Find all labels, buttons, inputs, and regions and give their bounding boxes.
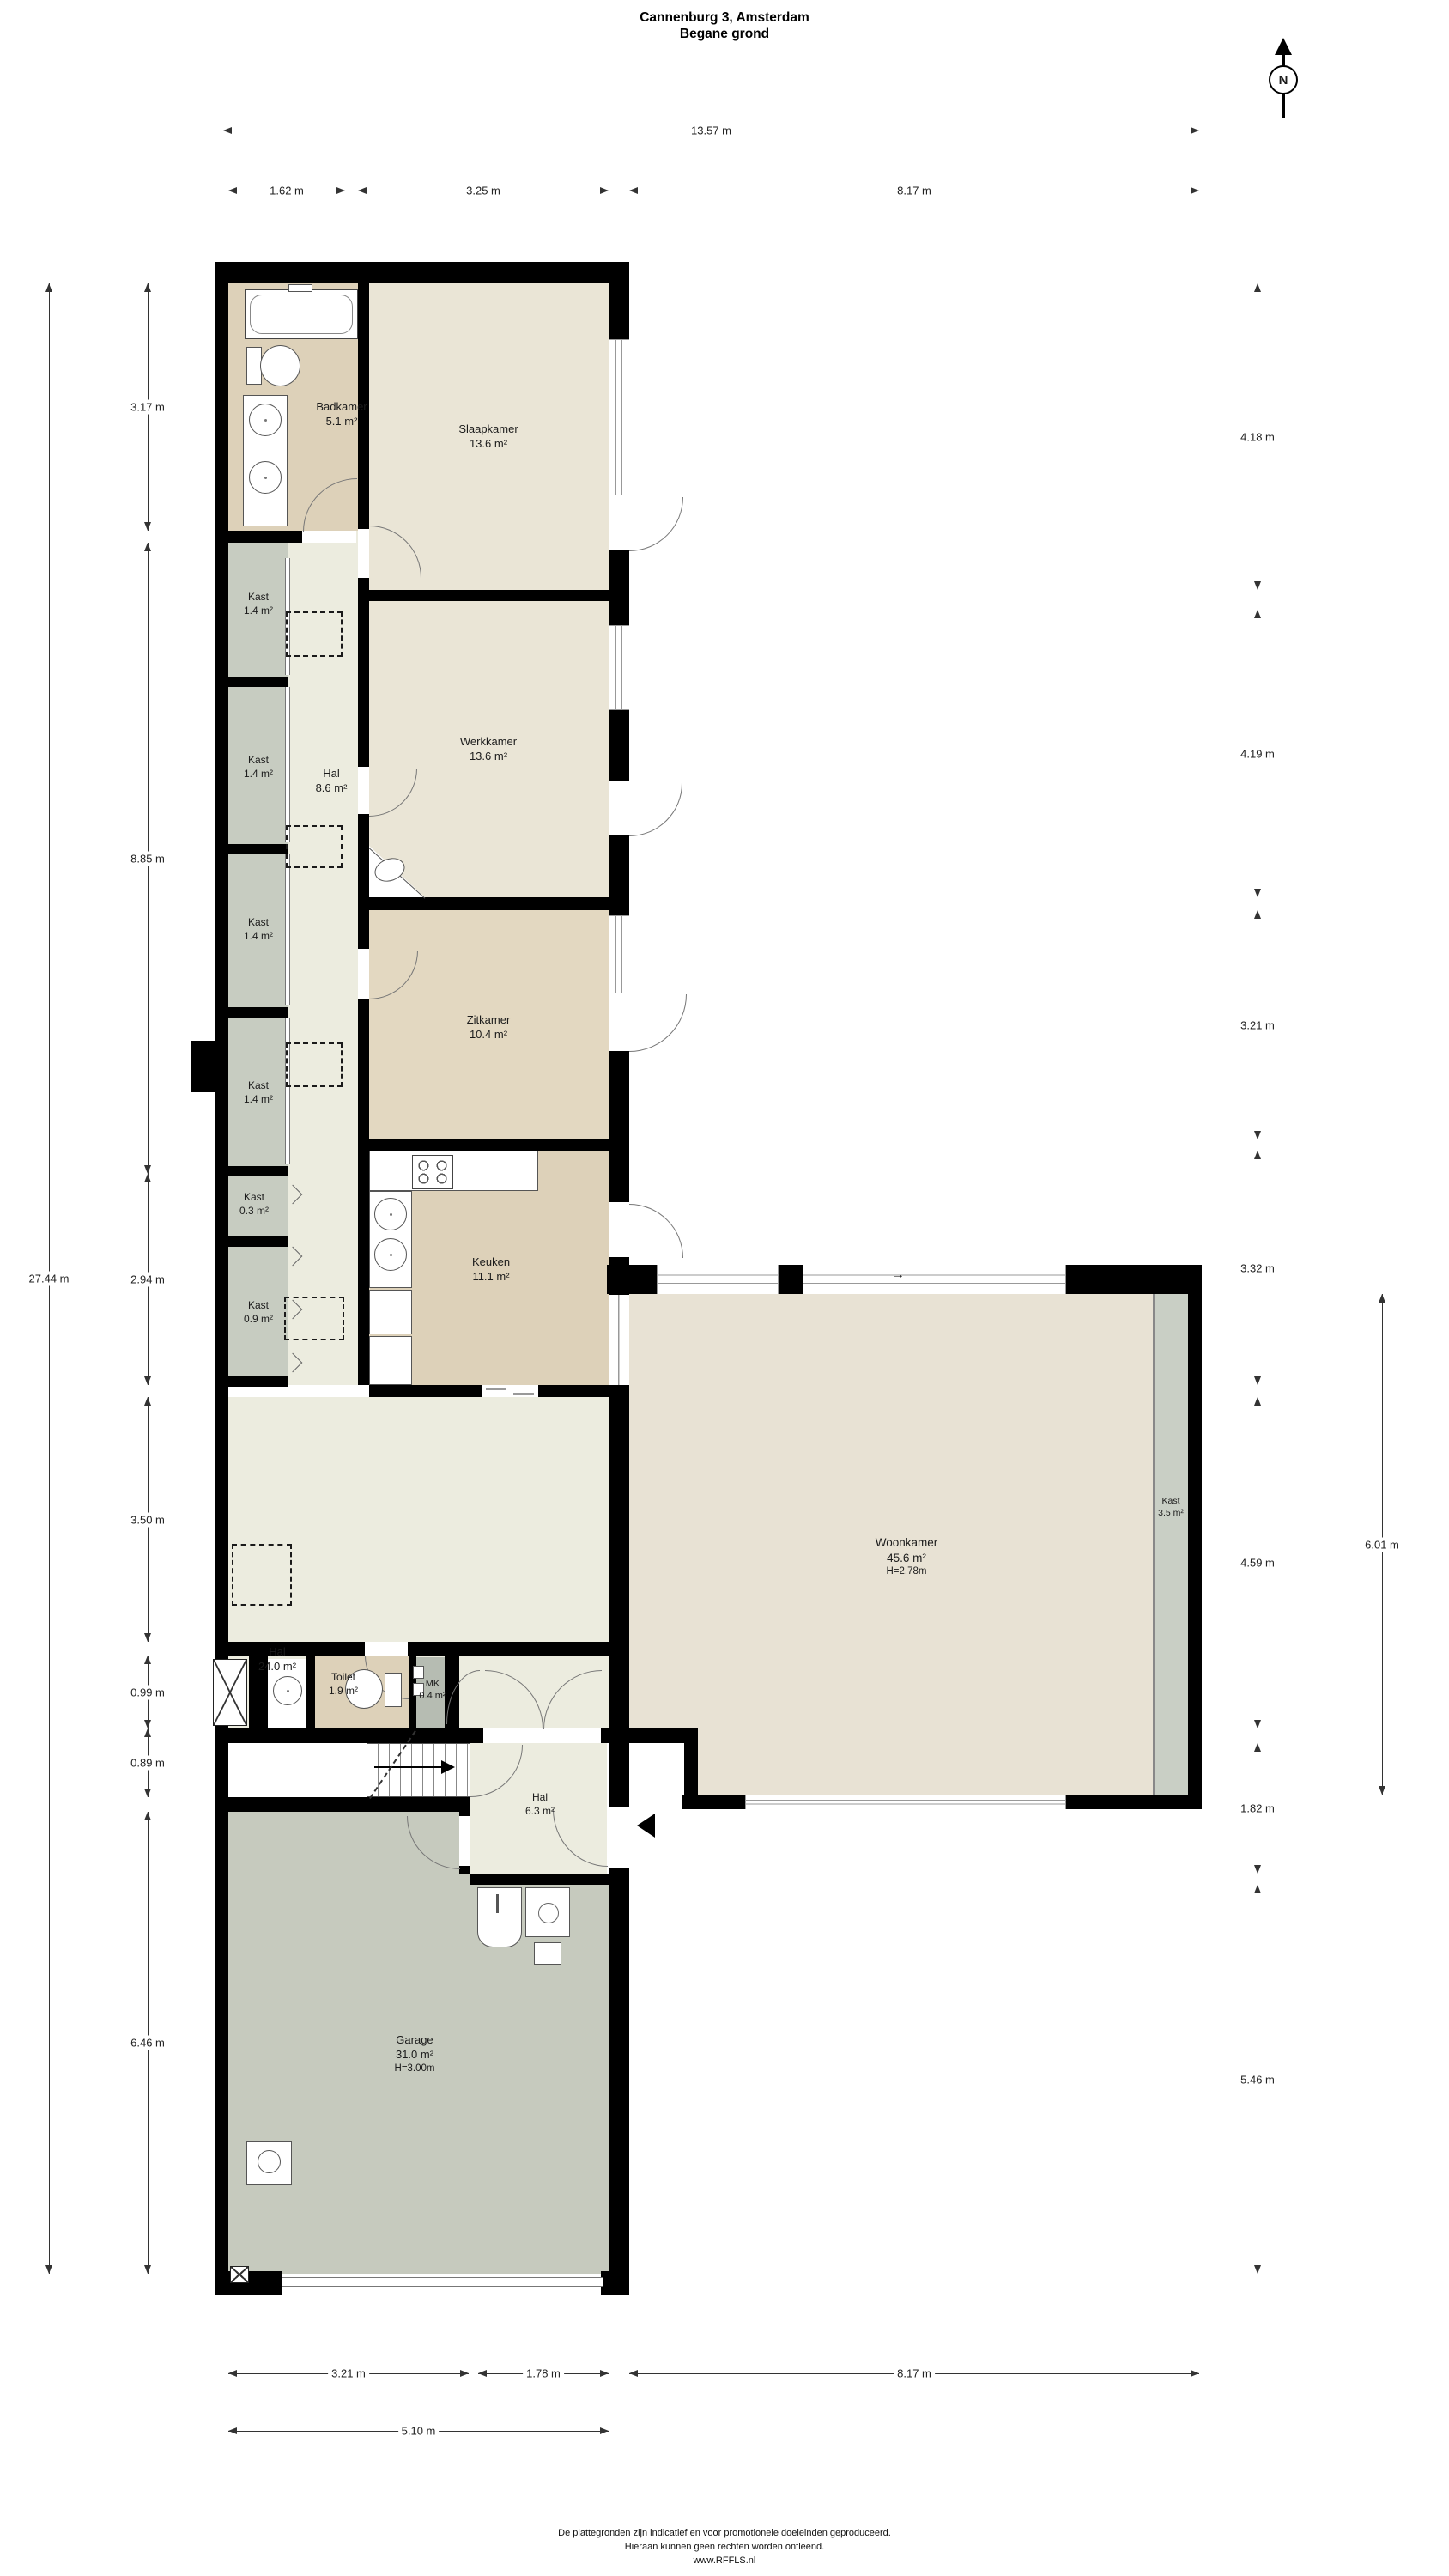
room-area: 1.9 m² [329,1685,358,1698]
toilet-tank-icon [385,1673,402,1707]
dim-bottom-total: 5.10 m [228,2431,609,2432]
room-label-werkkamer: Werkkamer 13.6 m² [460,735,517,764]
sink-icon [374,1198,407,1230]
stairs-arrow-head [441,1760,455,1774]
wall [609,550,629,625]
room-label-kast-2: Kast 1.4 m² [244,754,273,781]
room-name: Werkkamer [460,735,517,750]
floor-hal-corridor [288,1174,358,1385]
wall [228,677,288,687]
door-opening [358,767,369,814]
room-area: 8.6 m² [316,781,348,796]
closet-front [1153,1294,1155,1795]
footer-disclaimer-1: De plattegronden zijn indicatief en voor… [0,2528,1449,2538]
room-name: Garage [395,2033,435,2048]
room-label-kast-3-5: Kast 3.5 m² [1158,1496,1184,1519]
stairs-direction-arrow [374,1766,443,1768]
entrance-door-opening [609,1807,629,1868]
floor-woonkamer [629,1294,1188,1728]
closet-front [285,1018,290,1164]
wall [470,1874,629,1885]
wall [228,1166,288,1176]
bathtub-icon [245,289,358,339]
sink-icon [273,1676,302,1705]
door-arc [629,783,682,836]
room-area: 0.9 m² [244,1313,273,1327]
room-name: Zitkamer [467,1013,511,1028]
sink-icon [374,1238,407,1271]
door-arc [629,994,687,1052]
dim-left-5: 0.99 m [148,1656,149,1728]
meter-box-icon [413,1666,424,1679]
wall [609,1868,629,2280]
opening-keuken-woonkamer [609,1295,629,1385]
wall [228,844,288,854]
room-name: Badkamer [316,400,367,415]
skylight-hatch [284,1297,344,1340]
door-opening [365,1642,408,1656]
closet-front [285,687,290,842]
room-name: Kast [239,1191,269,1205]
door-opening [609,781,629,835]
wall [306,1656,315,1728]
double-door-opening [483,1728,601,1743]
window [609,339,629,495]
floorplan-page: Cannenburg 3, Amsterdam Begane grond N [0,0,1449,2576]
room-area: 31.0 m² [395,2048,435,2063]
room-name: Keuken [472,1255,510,1270]
room-area: 13.6 m² [460,750,517,764]
room-area: 45.6 m² [876,1551,938,1566]
door-opening [609,1202,629,1257]
room-label-kast-3: Kast 1.4 m² [244,916,273,943]
dim-right-1: 4.18 m [1258,283,1258,590]
door-opening [609,495,629,550]
wall [609,835,629,915]
door-opening [358,949,369,999]
floor-kast-3-5 [1155,1294,1188,1795]
dim-right-4: 3.32 m [1258,1151,1258,1385]
dim-bottom-2: 1.78 m [478,2373,609,2374]
dim-bottom-1: 3.21 m [228,2373,469,2374]
room-name: Hal [258,1645,296,1660]
room-name: Kast [244,916,273,930]
dim-right-3: 3.21 m [1258,910,1258,1139]
dim-left-6: 0.89 m [148,1728,149,1797]
appliance-icon [369,1290,412,1334]
door-arc [629,1204,683,1258]
wall [228,1236,288,1247]
compass-north-label: N [1269,65,1298,94]
room-area: 11.1 m² [472,1270,510,1285]
laundry-basket-icon [534,1942,561,1965]
room-label-slaapkamer: Slaapkamer 13.6 m² [458,422,518,452]
room-label-garage: Garage 31.0 m² H=3.00m [395,2033,435,2075]
door-opening [358,529,369,578]
wall [228,1007,288,1018]
wall [369,1139,629,1151]
dim-left-2: 8.85 m [148,543,149,1174]
room-height: H=3.00m [395,2063,435,2075]
flow-arrow-icon: → [891,1267,905,1283]
dim-right-6: 1.82 m [1258,1743,1258,1874]
room-height: H=2.78m [876,1565,938,1578]
room-label-kast-0-9: Kast 0.9 m² [244,1299,273,1326]
wall [609,708,629,781]
door-opening [459,1816,470,1866]
room-area: 1.4 m² [244,930,273,944]
room-label-keuken: Keuken 11.1 m² [472,1255,510,1285]
wall-chimney [191,1041,215,1092]
room-label-mk: MK 0.4 m² [419,1678,446,1703]
floor-kast-column [228,543,288,1385]
dim-top-1: 1.62 m [228,191,345,191]
skylight-hatch [286,825,343,868]
dim-right-inner: 6.01 m [1382,1294,1383,1795]
footer-website: www.RFFLS.nl [0,2555,1449,2566]
room-label-badkamer: Badkamer 5.1 m² [316,400,367,429]
bath-tap-icon [288,284,312,292]
page-subtitle: Begane grond [0,27,1449,42]
room-area: 13.6 m² [458,437,518,452]
room-area: 1.4 m² [244,605,273,618]
sink-icon [249,461,282,494]
wall [609,1385,629,1807]
room-area: 1.4 m² [244,768,273,781]
sliding-door-dash [486,1388,506,1390]
window [609,625,629,710]
room-name: Kast [244,591,273,605]
room-name: Slaapkamer [458,422,518,437]
wall [228,1797,470,1812]
door-opening [302,531,356,543]
skylight-hatch [232,1544,292,1606]
wall [601,2271,629,2295]
room-label-zitkamer: Zitkamer 10.4 m² [467,1013,511,1042]
garage-door [282,2277,603,2287]
room-area: 24.0 m² [258,1660,296,1674]
wall [215,262,228,2274]
shaft-icon [213,1659,247,1726]
room-area: 10.4 m² [467,1028,511,1042]
dim-left-4: 3.50 m [148,1397,149,1642]
room-area: 6.3 m² [525,1805,555,1819]
dim-left-total: 27.44 m [49,283,50,2274]
wall [358,283,369,1385]
room-label-hal-24: Hal 24.0 m² [258,1645,296,1674]
dim-top-2: 3.25 m [358,191,609,191]
sliding-door-dash [513,1393,534,1395]
wall [684,1728,698,1809]
wall [609,262,629,339]
dim-left-3: 2.94 m [148,1174,149,1385]
window [745,1795,1066,1809]
dim-left-7: 6.46 m [148,1812,149,2274]
toilet-bowl-icon [260,345,300,386]
stove-icon [412,1155,453,1189]
room-area: 5.1 m² [316,415,367,429]
room-name: Kast [244,754,273,768]
door-opening [609,993,629,1051]
room-label-hal-6-3: Hal 6.3 m² [525,1791,555,1818]
floor-woonkamer-lower [698,1728,1188,1795]
skylight-hatch [286,1042,343,1087]
room-area: 0.3 m² [239,1205,269,1218]
door-arc [629,497,683,551]
room-label-kast-4: Kast 1.4 m² [244,1079,273,1106]
wall [215,531,302,543]
kitchen-counter [369,1151,538,1191]
room-label-toilet: Toilet 1.9 m² [329,1671,358,1698]
closet-front [285,854,290,1005]
wall [215,262,629,283]
washing-machine-icon [525,1887,570,1937]
room-name: MK [419,1678,446,1690]
dim-right-5: 4.59 m [1258,1397,1258,1728]
wall [369,897,629,910]
room-name: Kast [1158,1496,1184,1508]
dim-left-1: 3.17 m [148,283,149,531]
room-label-hal-8-6: Hal 8.6 m² [316,767,348,796]
wall [358,590,629,601]
room-area: 0.4 m² [419,1690,446,1702]
window [609,915,629,994]
shaft-icon [230,2266,249,2283]
dim-right-7: 5.46 m [1258,1885,1258,2274]
dim-top-total: 13.57 m [223,131,1199,131]
sink-icon [249,404,282,436]
compass-north-arrow-icon [1275,38,1292,55]
room-name: Hal [316,767,348,781]
window [803,1265,1066,1294]
window [657,1265,779,1294]
room-name: Hal [525,1791,555,1805]
wall [228,1376,288,1387]
room-name: Kast [244,1299,273,1313]
room-label-woonkamer: Woonkamer 45.6 m² H=2.78m [876,1535,938,1578]
wall [609,1051,629,1202]
dim-top-3: 8.17 m [629,191,1199,191]
room-area: 3.5 m² [1158,1508,1184,1520]
skylight-hatch [286,611,343,657]
utility-sink-icon [477,1887,522,1947]
room-name: Woonkamer [876,1535,938,1551]
water-heater-dial-icon [258,2150,281,2173]
wall [1188,1265,1202,1807]
room-label-kast-1: Kast 1.4 m² [244,591,273,617]
tap-icon [496,1894,499,1913]
room-name: Kast [244,1079,273,1093]
dim-right-2: 4.19 m [1258,610,1258,897]
dim-bottom-3: 8.17 m [629,2373,1199,2374]
appliance-icon [369,1336,412,1385]
page-title: Cannenburg 3, Amsterdam [0,10,1449,26]
room-name: Toilet [329,1671,358,1685]
room-area: 1.4 m² [244,1093,273,1107]
entrance-arrow-icon [637,1814,655,1838]
room-label-kast-0-3: Kast 0.3 m² [239,1191,269,1218]
footer-disclaimer-2: Hieraan kunnen geen rechten worden ontle… [0,2542,1449,2552]
